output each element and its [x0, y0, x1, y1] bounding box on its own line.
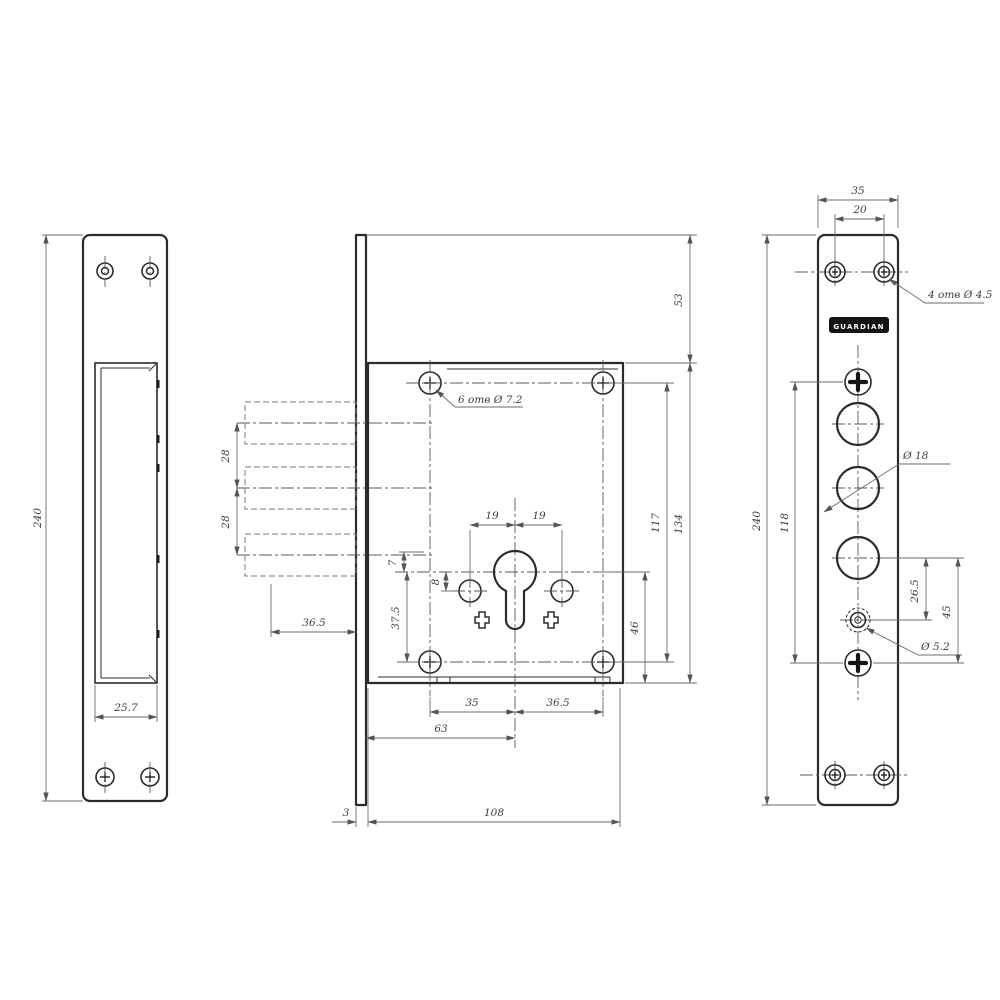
note-body-holes: 6 отв Ø 7.2 — [458, 394, 523, 406]
lock-technical-drawing: 240 25.7 — [0, 0, 1000, 1000]
deadbolts-hidden — [245, 402, 356, 576]
strike-cutout — [95, 363, 157, 683]
dim-aux-dia: Ø 5.2 — [920, 641, 950, 653]
dim-body-height: 134 — [673, 514, 685, 534]
dim-body-width: 108 — [484, 807, 504, 819]
dim-keyhole-to-bottom: 46 — [629, 621, 641, 636]
faceplate-side-profile — [356, 235, 366, 805]
dim-faceplate-height: 240 — [751, 511, 763, 532]
lock-body-outline — [368, 363, 623, 683]
dim-hole-span: 117 — [650, 513, 662, 533]
dim-keyhole-to-hole: 37.5 — [390, 606, 402, 630]
faceplate-leaders — [824, 279, 984, 655]
dim-pin-right: 19 — [532, 510, 546, 522]
body-dimension-lines — [237, 235, 697, 827]
dim-bolt-pitch-2: 28 — [220, 515, 232, 530]
dim-pin-drop: 8 — [430, 578, 442, 585]
dim-lip: 7 — [387, 559, 399, 566]
dim-bolt-dia: Ø 18 — [902, 450, 929, 462]
note-faceplate-screws: 4 отв Ø 4.5 — [927, 289, 993, 301]
dim-strike-cutout-width: 25.7 — [113, 702, 138, 714]
strike-dimension-lines — [42, 235, 157, 801]
dim-bolt-pitch-1: 28 — [220, 449, 232, 464]
brand-logo-text: GUARDIAN — [833, 323, 884, 331]
cylinder-pin-holes — [452, 575, 580, 607]
dim-screw-span: 118 — [779, 513, 791, 533]
dim-pin-left: 19 — [485, 510, 499, 522]
faceplate-screw-holes — [825, 262, 894, 785]
body-centerlines — [237, 360, 650, 748]
dim-plate-thickness: 3 — [343, 807, 350, 819]
dim-backset: 63 — [434, 723, 448, 735]
lock-body-view: 6 отв Ø 7.2 — [220, 235, 697, 827]
dim-strike-height: 240 — [32, 508, 44, 529]
dim-span-right: 36.5 — [546, 697, 570, 709]
technical-drawing-page: 240 25.7 — [0, 0, 1000, 1000]
dim-span-left: 35 — [465, 697, 479, 709]
faceplate-dimension-lines — [762, 195, 964, 805]
dim-aux-offset: 26.5 — [909, 579, 921, 604]
faceplate-centerlines — [795, 258, 908, 789]
faceplate-view: GUARDIAN 4 отв Ø 4.5 Ø 18 Ø 5. — [751, 185, 993, 805]
fixing-screw-slots — [475, 612, 558, 628]
dim-screw-pitch: 20 — [852, 204, 867, 216]
strike-plate-view: 240 25.7 — [32, 235, 167, 801]
dim-screw-offset: 45 — [941, 605, 953, 620]
dim-faceplate-width: 35 — [851, 185, 865, 197]
dim-top-offset: 53 — [673, 293, 685, 307]
dim-bolt-throw: 36.5 — [302, 617, 326, 629]
